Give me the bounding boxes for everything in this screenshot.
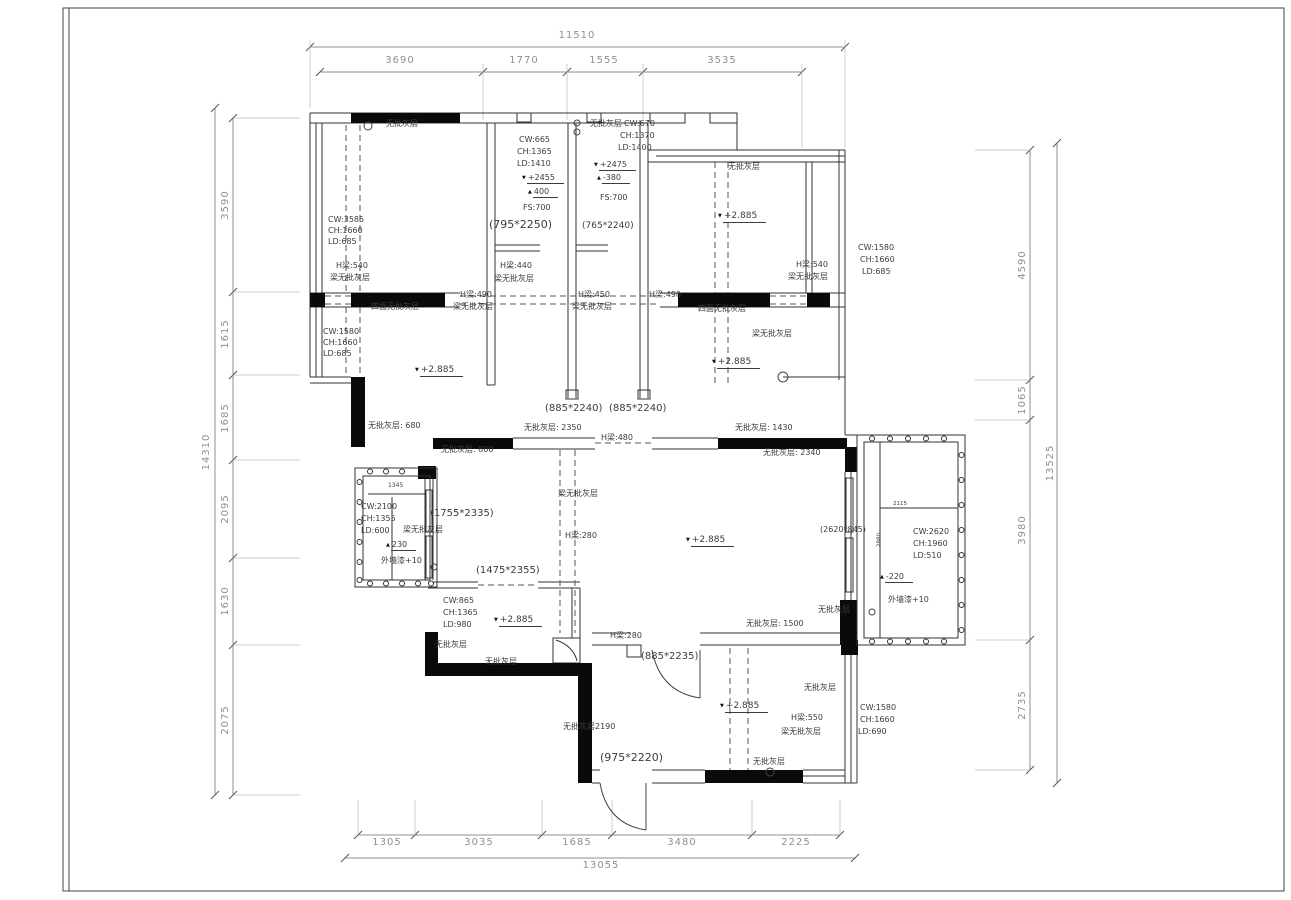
- plan-label: 无批灰层: [818, 606, 850, 614]
- dim-label: 11510: [559, 31, 596, 41]
- plan-label: CW:670: [624, 120, 655, 128]
- plan-label: LD:690: [858, 728, 887, 736]
- plan-label: CW:3585: [328, 216, 364, 224]
- plan-label: CW:1580: [858, 244, 894, 252]
- plan-label: CW:1580: [860, 704, 896, 712]
- plan-label: ▼+2.885: [720, 702, 768, 711]
- plan-label: ▲230: [386, 541, 416, 549]
- plan-label: 无批灰层: [386, 120, 418, 128]
- plan-label: (1475*2355): [476, 566, 540, 576]
- plan-label: H梁:540: [796, 261, 828, 269]
- plan-label: CH:1960: [913, 540, 948, 548]
- plan-label: 无批灰层: 800: [441, 446, 494, 454]
- plan-label: FS:700: [523, 204, 551, 212]
- dim-label: 3535: [707, 56, 736, 66]
- plan-label: CH:1370: [620, 132, 655, 140]
- plan-label: H梁:440: [500, 262, 532, 270]
- plan-label: CH:1660: [860, 256, 895, 264]
- plan-label: CW:865: [443, 597, 474, 605]
- plan-label: CW:2100: [361, 503, 397, 511]
- plan-label: 梁无批灰层: [330, 274, 370, 282]
- plan-label: 梁无批灰层: [494, 275, 534, 283]
- plan-label: 无批灰层: 1430: [735, 424, 793, 432]
- plan-label: H梁:550: [791, 714, 823, 722]
- plan-label: (975*2220): [600, 752, 663, 763]
- plan-label: ▼+2.885: [494, 616, 542, 625]
- plan-label: 1345: [388, 483, 403, 489]
- plan-label: ▼+2.885: [415, 366, 463, 375]
- plan-label: CH:1660: [328, 227, 363, 235]
- dim-label: 1630: [221, 586, 231, 615]
- plan-label: LD:685: [323, 350, 352, 358]
- plan-label: 无批灰层: 2340: [763, 449, 821, 457]
- plan-label: 梁无批灰层: [558, 490, 598, 498]
- plan-label: 梁无批灰层: [453, 303, 493, 311]
- plan-label: (885*2235): [641, 652, 698, 662]
- plan-label: H梁:540: [336, 262, 368, 270]
- dim-label: 1305: [372, 838, 401, 848]
- plan-label: FS:700: [600, 194, 628, 202]
- plan-label: (885*2240): [609, 404, 666, 414]
- plan-label: LD:685: [328, 238, 357, 246]
- plan-label: 无批灰层: 2350: [524, 424, 582, 432]
- dim-label: 3980: [1018, 515, 1028, 544]
- dim-label: 2225: [781, 838, 810, 848]
- plan-label: 梁无批灰层: [781, 728, 821, 736]
- plan-label: CH:1365: [517, 148, 552, 156]
- plan-label: CW:1580: [323, 328, 359, 336]
- plan-label: LD:980: [443, 621, 472, 629]
- plan-label: LD:1400: [618, 144, 652, 152]
- plan-label: H梁:490: [649, 291, 681, 299]
- dim-label: 13055: [583, 861, 620, 871]
- plan-label: 2115: [893, 502, 907, 508]
- plan-label: CW:665: [519, 136, 550, 144]
- plan-label: (795*2250): [489, 219, 552, 230]
- plan-label: 无批灰层: 680: [368, 422, 421, 430]
- plan-label: 梁无批灰层: [788, 273, 828, 281]
- plan-label: H梁:490: [460, 291, 492, 299]
- dim-label: 1770: [509, 56, 538, 66]
- plan-label: 无批灰层: [728, 163, 760, 171]
- plan-label: (885*2240): [545, 404, 602, 414]
- plan-label: ▼+2.885: [718, 212, 766, 221]
- plan-label: 四面无批灰层: [698, 305, 746, 313]
- plan-label: 无批灰层: [435, 641, 467, 649]
- plan-label: 无批灰层: [753, 758, 785, 766]
- plan-label: ▼+2.885: [712, 358, 760, 367]
- plan-label: 梁无批灰层: [572, 303, 612, 311]
- plan-label: 梁无批灰层: [752, 330, 792, 338]
- plan-label: CH:1365: [443, 609, 478, 617]
- plan-label: 无批灰层: 1500: [746, 620, 804, 628]
- dim-label: 14310: [202, 434, 212, 471]
- plan-label: LD:600: [361, 527, 390, 535]
- annotation-layer: 1151036901770155535351431035901615168520…: [0, 0, 1291, 900]
- plan-label: (2620*845): [820, 526, 866, 534]
- dim-label: 13525: [1046, 445, 1056, 482]
- plan-label: CH:1355: [361, 515, 396, 523]
- dim-label: 2735: [1018, 690, 1028, 719]
- dim-label: 3590: [221, 190, 231, 219]
- dim-label: 2095: [221, 494, 231, 523]
- dim-label: 4590: [1018, 250, 1028, 279]
- dim-label: 3480: [667, 838, 696, 848]
- plan-label: 无批灰层: [804, 684, 836, 692]
- dim-label: 1555: [589, 56, 618, 66]
- plan-label: ▼+2475: [594, 161, 636, 169]
- plan-label: 梁无批灰层: [403, 526, 443, 534]
- dim-label: 3690: [385, 56, 414, 66]
- plan-label: H梁:280: [565, 532, 597, 540]
- plan-label: 2880: [877, 533, 883, 547]
- dim-label: 1065: [1018, 385, 1028, 414]
- plan-label: 无批灰层: [590, 120, 622, 128]
- plan-label: CW:2620: [913, 528, 949, 536]
- plan-label: LD:1410: [517, 160, 551, 168]
- plan-label: ▲-380: [597, 174, 630, 182]
- plan-label: ▼+2455: [522, 174, 564, 182]
- plan-label: CH:1660: [323, 339, 358, 347]
- plan-label: 四面无批灰层: [371, 303, 419, 311]
- dim-label: 1615: [221, 319, 231, 348]
- plan-label: (765*2240): [582, 222, 634, 231]
- plan-label: 无批灰层: [485, 658, 517, 666]
- dim-label: 3035: [464, 838, 493, 848]
- plan-label: ▲400: [528, 188, 558, 196]
- dim-label: 1685: [221, 403, 231, 432]
- plan-label: LD:685: [862, 268, 891, 276]
- plan-label: ▼+2.885: [686, 536, 734, 545]
- plan-label: 外墙漆+10: [381, 557, 422, 565]
- plan-label: H梁:280: [610, 632, 642, 640]
- plan-label: ▲-220: [880, 573, 913, 581]
- plan-label: (1755*2335): [430, 509, 494, 519]
- dim-label: 1685: [562, 838, 591, 848]
- plan-label: 外墙漆+10: [888, 596, 929, 604]
- plan-label: H梁:450: [578, 291, 610, 299]
- plan-label: 无批灰层2190: [563, 723, 615, 731]
- plan-label: H梁:480: [601, 434, 633, 442]
- plan-label: CH:1660: [860, 716, 895, 724]
- floor-plan-sheet: 1151036901770155535351431035901615168520…: [0, 0, 1291, 900]
- dim-label: 2075: [221, 705, 231, 734]
- plan-label: LD:510: [913, 552, 942, 560]
